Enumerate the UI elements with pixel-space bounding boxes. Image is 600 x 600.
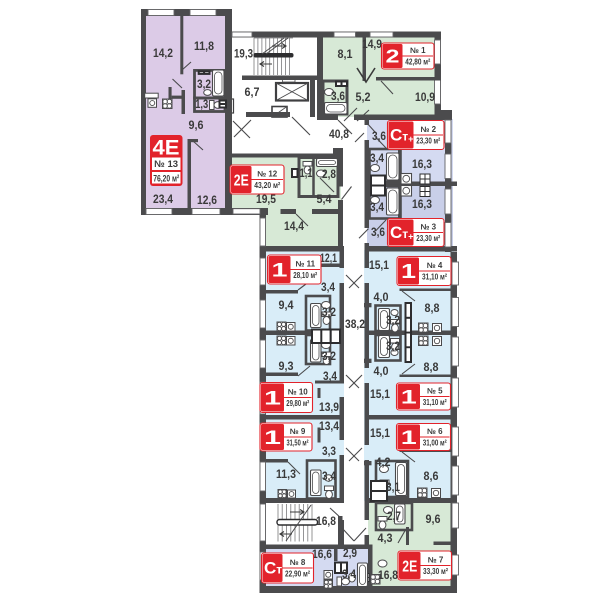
svg-text:4Е: 4Е xyxy=(153,137,180,160)
svg-text:3,2: 3,2 xyxy=(386,315,400,327)
svg-text:4,3: 4,3 xyxy=(378,533,393,545)
svg-text:4,2: 4,2 xyxy=(376,457,391,469)
svg-text:19,5: 19,5 xyxy=(256,194,277,206)
svg-text:3,2: 3,2 xyxy=(197,79,211,91)
svg-text:23,30 м²: 23,30 м² xyxy=(416,233,440,243)
svg-text:1: 1 xyxy=(264,388,282,409)
svg-text:3,4: 3,4 xyxy=(322,471,337,483)
svg-text:1: 1 xyxy=(401,261,416,283)
svg-text:29,80 м²: 29,80 м² xyxy=(286,398,309,408)
svg-text:11,3: 11,3 xyxy=(276,469,296,481)
svg-text:3,4: 3,4 xyxy=(342,569,357,581)
svg-text:№ 6: № 6 xyxy=(427,427,443,436)
svg-text:8,8: 8,8 xyxy=(424,362,440,374)
svg-text:4,0: 4,0 xyxy=(374,366,389,378)
svg-text:11,8: 11,8 xyxy=(194,41,215,53)
svg-text:8,1: 8,1 xyxy=(338,49,354,61)
svg-text:2,9: 2,9 xyxy=(343,548,357,560)
svg-text:№ 12: № 12 xyxy=(257,169,278,178)
svg-text:3,1: 3,1 xyxy=(386,482,401,494)
svg-text:8,8: 8,8 xyxy=(425,303,441,315)
svg-text:3,6: 3,6 xyxy=(372,131,386,143)
svg-text:3,4: 3,4 xyxy=(370,153,385,165)
svg-text:13,4: 13,4 xyxy=(319,421,340,433)
svg-text:3,2: 3,2 xyxy=(322,351,336,363)
svg-text:19,3: 19,3 xyxy=(234,49,253,61)
svg-text:№ 3: № 3 xyxy=(420,222,436,231)
svg-text:33,30 м²: 33,30 м² xyxy=(423,566,448,576)
svg-text:1: 1 xyxy=(401,387,418,408)
svg-text:14,4: 14,4 xyxy=(284,221,305,233)
svg-text:2,8: 2,8 xyxy=(322,169,337,181)
svg-text:1,3: 1,3 xyxy=(195,99,208,111)
svg-text:5,2: 5,2 xyxy=(356,92,371,104)
svg-text:16,8: 16,8 xyxy=(378,570,399,582)
svg-text:42,80 м²: 42,80 м² xyxy=(405,57,430,67)
svg-text:1: 1 xyxy=(264,428,282,449)
svg-text:№ 2: № 2 xyxy=(420,125,436,134)
svg-text:16,6: 16,6 xyxy=(312,549,332,561)
svg-text:23,4: 23,4 xyxy=(153,194,174,206)
svg-text:2Е: 2Е xyxy=(402,558,417,575)
svg-text:28,10 м²: 28,10 м² xyxy=(293,270,317,280)
svg-text:8,6: 8,6 xyxy=(424,471,439,483)
svg-text:2Е: 2Е xyxy=(234,172,249,189)
svg-text:12,6: 12,6 xyxy=(197,195,217,207)
svg-text:№ 8: № 8 xyxy=(290,558,306,567)
svg-text:2,7: 2,7 xyxy=(387,511,401,523)
svg-text:31,10 м²: 31,10 м² xyxy=(422,272,447,282)
svg-text:9,3: 9,3 xyxy=(279,361,294,373)
svg-text:№ 13: № 13 xyxy=(154,159,178,170)
svg-text:1: 1 xyxy=(401,428,418,449)
svg-text:3,3: 3,3 xyxy=(322,446,336,458)
svg-text:№ 4: № 4 xyxy=(427,261,443,270)
svg-text:3,6: 3,6 xyxy=(371,227,385,239)
svg-text:13,9: 13,9 xyxy=(319,402,339,414)
svg-text:1,1: 1,1 xyxy=(300,168,313,180)
svg-text:№ 10: № 10 xyxy=(288,387,309,396)
svg-text:3,6: 3,6 xyxy=(331,91,345,103)
svg-text:3,2: 3,2 xyxy=(322,307,336,319)
svg-text:№ 5: № 5 xyxy=(427,386,443,395)
svg-text:31,50 м²: 31,50 м² xyxy=(287,438,309,448)
svg-text:№ 11: № 11 xyxy=(295,259,315,268)
svg-text:16,3: 16,3 xyxy=(412,159,432,171)
svg-text:10,9: 10,9 xyxy=(415,92,435,104)
svg-text:1: 1 xyxy=(272,260,289,281)
svg-text:38,2: 38,2 xyxy=(345,319,365,331)
svg-text:31,00 м²: 31,00 м² xyxy=(423,438,447,448)
svg-text:9,6: 9,6 xyxy=(189,120,204,132)
svg-text:9,4: 9,4 xyxy=(279,300,295,312)
svg-text:3,4: 3,4 xyxy=(370,202,385,214)
svg-text:15,1: 15,1 xyxy=(370,389,391,401)
svg-text:№ 9: № 9 xyxy=(290,427,306,436)
svg-text:14,9: 14,9 xyxy=(362,39,382,51)
svg-text:15,1: 15,1 xyxy=(370,428,391,440)
svg-text:6,7: 6,7 xyxy=(245,87,260,99)
svg-text:5,4: 5,4 xyxy=(317,194,333,206)
svg-text:16,8: 16,8 xyxy=(316,516,337,528)
svg-text:№ 1: № 1 xyxy=(410,46,426,55)
svg-text:43,20 м²: 43,20 м² xyxy=(254,180,280,190)
svg-text:23,30 м²: 23,30 м² xyxy=(416,136,440,146)
svg-text:14,2: 14,2 xyxy=(153,48,173,60)
svg-text:2: 2 xyxy=(386,46,400,66)
svg-text:№ 7: № 7 xyxy=(428,555,444,564)
svg-text:15,1: 15,1 xyxy=(369,260,390,272)
svg-text:76,20 м²: 76,20 м² xyxy=(153,173,179,184)
svg-text:12,1: 12,1 xyxy=(320,253,337,265)
svg-text:3,2: 3,2 xyxy=(386,341,400,353)
svg-text:16,3: 16,3 xyxy=(412,199,432,211)
svg-text:9,6: 9,6 xyxy=(426,514,441,526)
svg-text:3,4: 3,4 xyxy=(323,371,338,383)
svg-text:40,8: 40,8 xyxy=(329,129,350,141)
svg-text:4,0: 4,0 xyxy=(374,292,389,304)
svg-text:31,10 м²: 31,10 м² xyxy=(423,397,447,407)
svg-text:3,4: 3,4 xyxy=(321,282,336,294)
svg-text:22,90 м²: 22,90 м² xyxy=(285,569,310,579)
